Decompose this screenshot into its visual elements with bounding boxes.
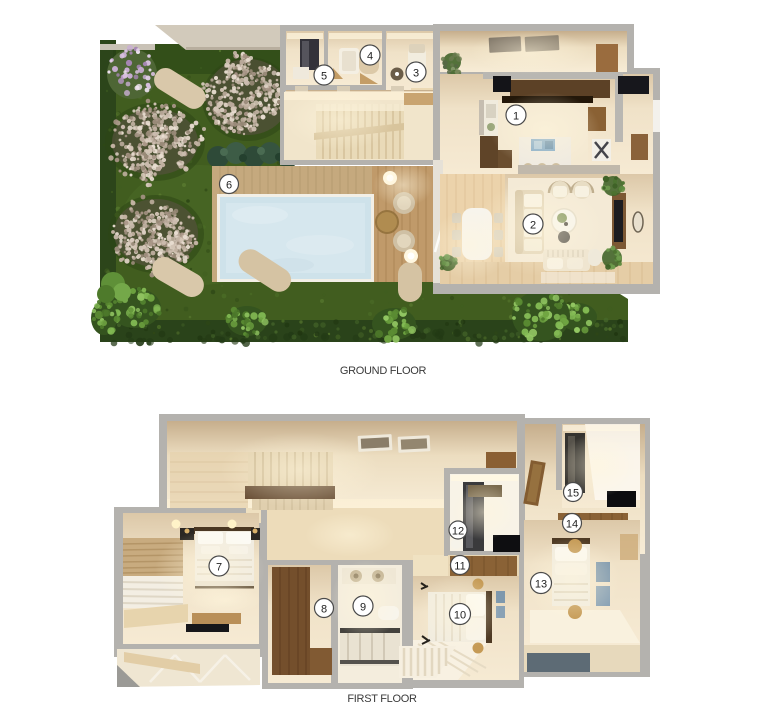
svg-text:5: 5 xyxy=(321,71,327,83)
svg-text:11: 11 xyxy=(454,561,465,573)
svg-text:7: 7 xyxy=(216,562,222,574)
svg-text:2: 2 xyxy=(530,220,536,232)
svg-text:1: 1 xyxy=(513,111,519,123)
svg-text:4: 4 xyxy=(367,51,373,63)
svg-text:8: 8 xyxy=(321,604,327,616)
svg-text:14: 14 xyxy=(566,519,578,531)
svg-text:FIRST FLOOR: FIRST FLOOR xyxy=(347,693,417,705)
svg-text:9: 9 xyxy=(360,602,366,614)
svg-text:GROUND FLOOR: GROUND FLOOR xyxy=(340,365,427,377)
svg-text:12: 12 xyxy=(452,526,464,538)
svg-text:13: 13 xyxy=(535,579,547,591)
svg-text:3: 3 xyxy=(413,68,419,80)
svg-text:15: 15 xyxy=(567,488,579,500)
svg-text:10: 10 xyxy=(454,610,466,622)
svg-text:6: 6 xyxy=(226,180,232,192)
